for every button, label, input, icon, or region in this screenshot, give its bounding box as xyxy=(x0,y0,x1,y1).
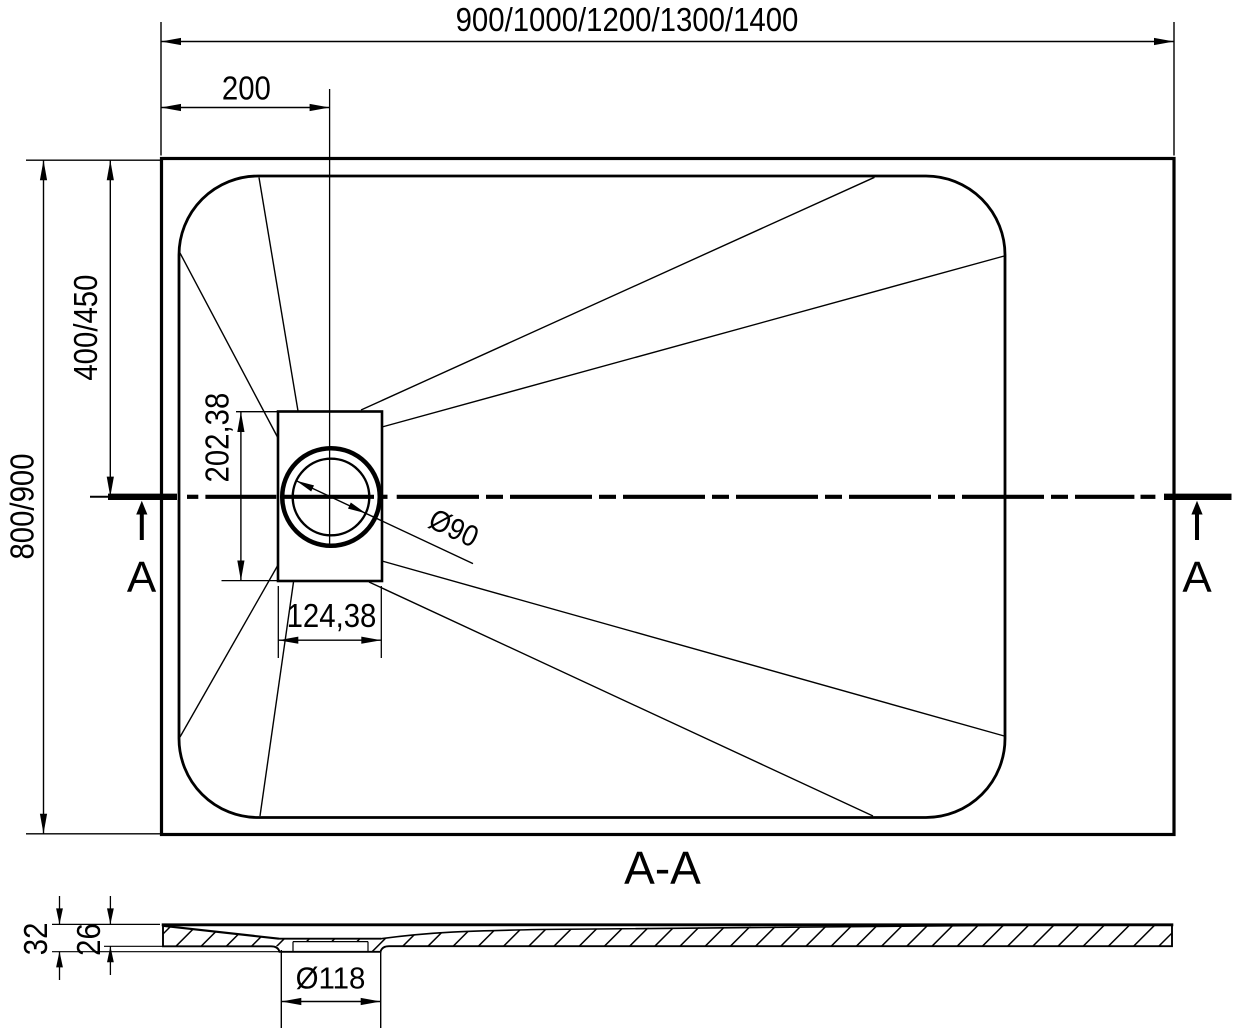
svg-text:200: 200 xyxy=(222,70,271,107)
svg-text:Ø118: Ø118 xyxy=(296,962,366,996)
svg-text:900/1000/1200/1300/1400: 900/1000/1200/1300/1400 xyxy=(456,1,799,38)
svg-text:124,38: 124,38 xyxy=(287,598,377,635)
svg-text:A-A: A-A xyxy=(624,842,701,894)
svg-text:32: 32 xyxy=(17,923,54,956)
svg-text:400/450: 400/450 xyxy=(67,275,104,381)
svg-text:A: A xyxy=(1182,553,1212,602)
svg-text:A: A xyxy=(127,553,157,602)
svg-text:26: 26 xyxy=(71,923,108,956)
svg-text:800/900: 800/900 xyxy=(4,453,41,559)
svg-text:202,38: 202,38 xyxy=(199,393,236,483)
